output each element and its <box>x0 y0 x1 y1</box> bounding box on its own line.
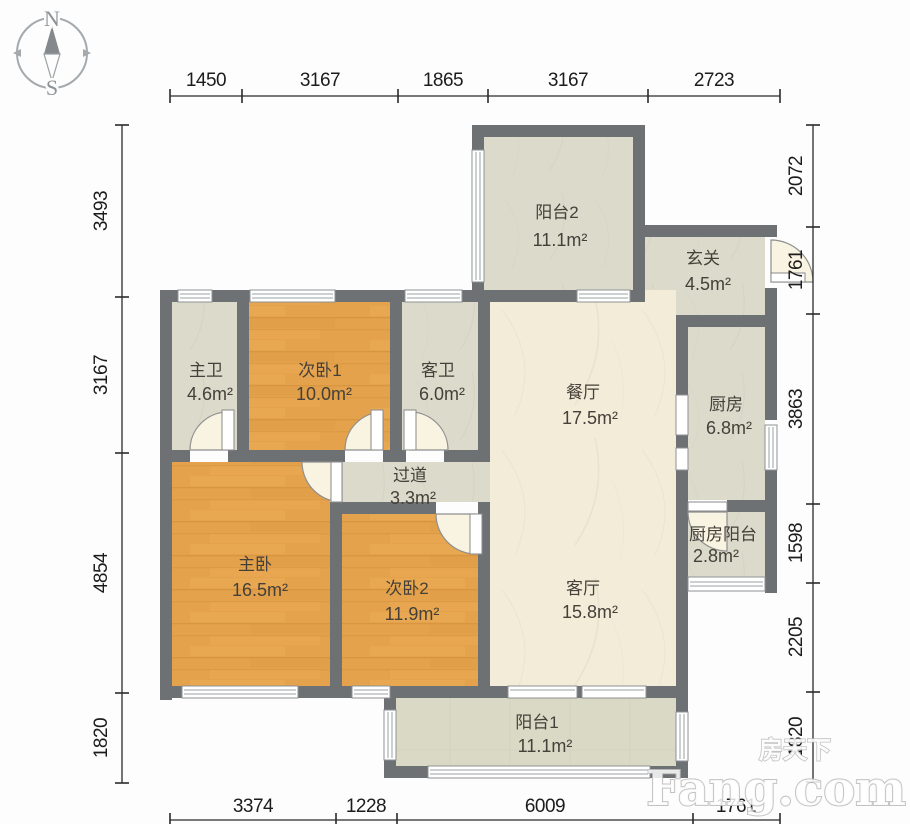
opening-kitchen-door <box>676 395 688 470</box>
dim-right-1: 1761 <box>786 250 807 290</box>
room-floor-master-bedroom <box>172 462 330 686</box>
room-area-kitchen-balcony: 2.8m² <box>693 546 739 566</box>
room-area-master-bedroom: 16.5m² <box>232 580 288 600</box>
window-balcony2-left <box>472 150 484 282</box>
dim-top-3: 3167 <box>548 70 588 91</box>
room-area-living: 15.8m² <box>562 602 618 622</box>
dim-left-2: 4854 <box>91 552 112 593</box>
room-name-dining: 餐厅 <box>566 383 600 402</box>
room-name-balcony1: 阳台1 <box>515 713 558 732</box>
opening-living-balcony1-right <box>582 686 646 698</box>
window-master-bath-top <box>178 290 212 302</box>
window-kitchen-balcony-bottom <box>688 577 765 591</box>
room-area-bedroom2: 11.9m² <box>385 604 440 624</box>
dim-left-1: 3167 <box>91 355 112 395</box>
room-name-bedroom2: 次卧2 <box>385 579 428 598</box>
room-name-guest-bath: 客卫 <box>421 361 455 380</box>
window-balcony1-left <box>384 710 396 760</box>
room-area-balcony2: 11.1m² <box>533 230 588 250</box>
window-balcony1-right <box>676 712 688 761</box>
dim-bottom-1: 1228 <box>346 796 386 817</box>
room-name-kitchen: 厨房 <box>709 395 743 414</box>
dim-right-3: 1598 <box>786 523 807 563</box>
opening-living-balcony1-left <box>508 686 577 698</box>
dim-right-2: 3863 <box>786 389 807 429</box>
dim-left-3: 1820 <box>91 718 112 758</box>
window-bedroom1-top <box>250 290 335 302</box>
window-kitchen-right <box>765 425 777 470</box>
room-area-bedroom1: 10.0m² <box>296 384 352 404</box>
watermark-en-text: Fang.com <box>646 761 906 817</box>
dim-top-1: 3167 <box>300 70 340 91</box>
room-name-balcony2: 阳台2 <box>535 203 578 222</box>
floor-plan-image: 阳台2 11.1m² 玄关 4.5m² 主卫 4.6m² 次卧1 10.0m² … <box>0 0 910 824</box>
watermark-cn-text: 房天下 <box>759 735 831 764</box>
window-guest-bath-top <box>405 290 462 302</box>
dimension-chain-right: 2072 1761 3863 1598 2205 1820 <box>786 125 820 782</box>
window-bedroom2-bottom <box>352 686 390 698</box>
dim-top-0: 1450 <box>186 70 226 91</box>
dim-left-0: 3493 <box>91 191 112 231</box>
dim-right-0: 2072 <box>786 156 807 196</box>
room-name-living: 客厅 <box>566 579 600 598</box>
window-master-bedroom-bottom <box>182 686 298 698</box>
room-area-guest-bath: 6.0m² <box>419 384 465 404</box>
dim-top-2: 1865 <box>423 70 463 91</box>
room-area-entry: 4.5m² <box>685 274 731 294</box>
room-area-kitchen: 6.8m² <box>706 418 752 438</box>
dimension-chain-left: 3493 3167 4854 1820 <box>91 125 129 783</box>
compass-north-label: N <box>44 6 60 31</box>
room-area-corridor: 3.3m² <box>390 488 436 508</box>
window-balcony2-bottom <box>577 290 630 302</box>
dim-right-4: 2205 <box>786 617 807 657</box>
window-balcony1-bottom <box>428 766 650 778</box>
compass-south-label: S <box>46 75 58 100</box>
dimension-chain-top: 1450 3167 1865 3167 2723 <box>170 70 780 103</box>
room-name-kitchen-balcony: 厨房阳台 <box>689 525 757 544</box>
room-area-master-bath: 4.6m² <box>187 384 233 404</box>
room-area-dining: 17.5m² <box>562 408 618 428</box>
room-floor-dining-living <box>490 298 676 688</box>
room-name-corridor: 过道 <box>393 466 427 485</box>
dim-top-4: 2723 <box>694 70 734 91</box>
room-name-entry: 玄关 <box>686 249 720 268</box>
room-floor-entry-passage <box>645 290 676 315</box>
room-name-master-bedroom: 主卧 <box>238 555 272 574</box>
dim-bottom-0: 3374 <box>233 796 274 817</box>
room-area-balcony1: 11.1m² <box>518 736 573 756</box>
compass-icon: N S <box>13 6 91 100</box>
room-name-master-bath: 主卫 <box>189 361 223 380</box>
floor-plan-svg: 阳台2 11.1m² 玄关 4.5m² 主卫 4.6m² 次卧1 10.0m² … <box>0 0 910 824</box>
room-name-bedroom1: 次卧1 <box>298 361 341 380</box>
dim-bottom-2: 6009 <box>525 796 565 817</box>
